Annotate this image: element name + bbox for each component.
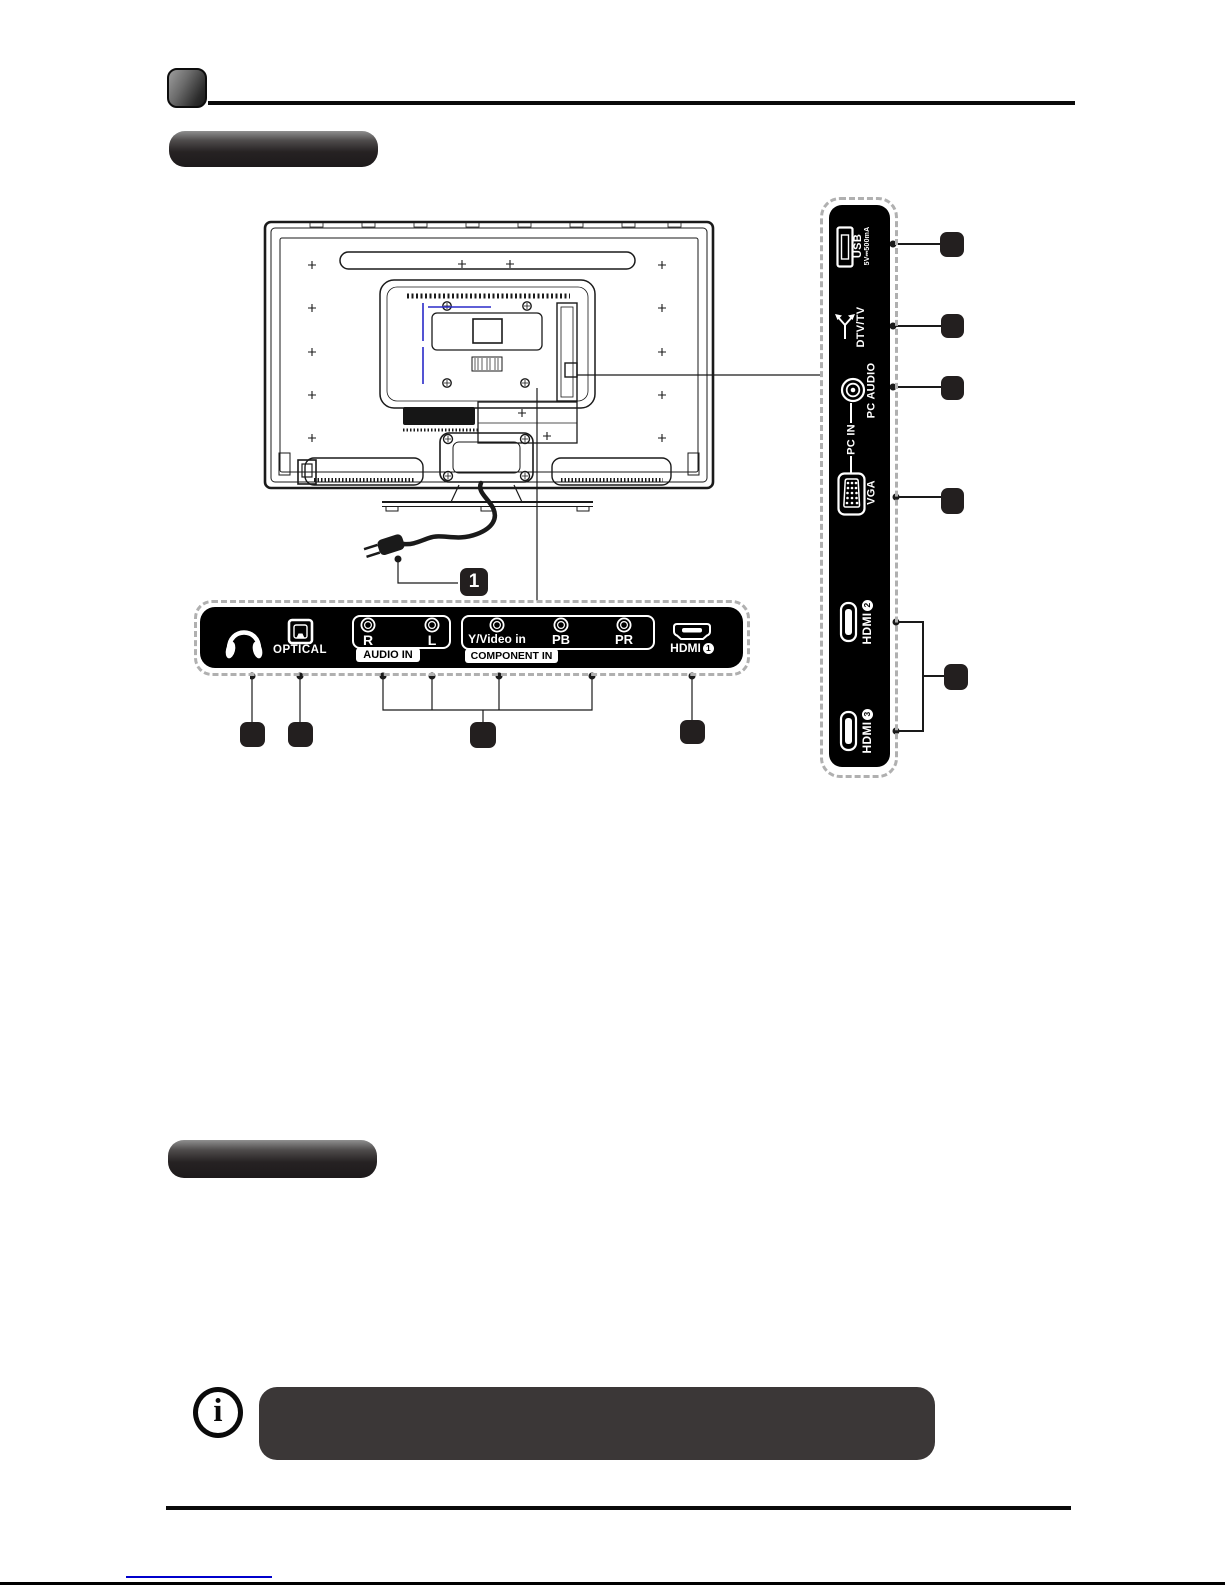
callout-badge-optical [288, 722, 313, 747]
section-title-bar [169, 131, 378, 167]
vga-port-icon [837, 472, 867, 516]
pc-in-label: PC IN [846, 421, 859, 459]
audio-r-jack-icon [360, 617, 376, 633]
footer-rule [166, 1506, 1071, 1510]
chapter-number-icon [167, 68, 207, 108]
component-pb-jack-icon [553, 617, 569, 633]
callout-badge-pc-audio [941, 376, 964, 400]
headphone-icon [221, 618, 267, 664]
callout-badge-headphone [240, 722, 265, 747]
dtv-tv-label: DTV/TV [855, 302, 869, 352]
antenna-icon [834, 312, 856, 340]
component-pr-label: PR [610, 632, 638, 647]
hdmi1-port-icon [672, 622, 712, 640]
power-cord [404, 483, 495, 544]
pc-audio-jack-icon [840, 377, 866, 403]
stand-neck [440, 433, 533, 482]
hdmi3-number: 3 [862, 709, 873, 720]
audio-l-jack-icon [424, 617, 440, 633]
audio-l-label: L [424, 632, 440, 648]
optical-port-icon [287, 618, 314, 645]
callout-badge-vga [941, 488, 964, 514]
footer-link-underline [126, 1576, 272, 1578]
hdmi1-label: HDMI1 [666, 641, 718, 655]
hdmi1-number: 1 [703, 643, 714, 654]
section-title-bar-2 [168, 1140, 377, 1178]
callout-badge-hdmi23 [944, 664, 968, 690]
usb-label: USB 5V⎓500mA [852, 219, 876, 273]
callout-badge-hdmi1 [680, 720, 705, 744]
note-box [259, 1387, 935, 1460]
callout-badge-usb [940, 232, 964, 257]
hdmi2-port-icon [839, 601, 858, 643]
callout-badge-av-inputs [470, 722, 496, 748]
component-pb-label: PB [547, 632, 575, 647]
header-rule [208, 101, 1075, 105]
optical-label: OPTICAL [269, 644, 331, 656]
hdmi2-number: 2 [862, 600, 873, 611]
callout-badge-power: 1 [460, 568, 488, 596]
component-y-label: Y/Video in [462, 632, 532, 646]
component-pr-jack-icon [616, 617, 632, 633]
info-icon: i [193, 1387, 243, 1438]
leader-lines-right [896, 244, 946, 731]
vga-label: VGA [866, 478, 879, 508]
tv-handle [340, 252, 635, 269]
audio-in-tab: AUDIO IN [356, 648, 420, 662]
vent-slot [403, 407, 475, 425]
hdmi3-label: HDMI3 [858, 707, 872, 755]
hdmi2-label: HDMI2 [858, 598, 872, 646]
audio-r-label: R [360, 632, 376, 648]
hdmi3-port-icon [839, 710, 858, 752]
callout-badge-dtv [941, 314, 964, 338]
pc-audio-label: PC AUDIO [866, 361, 879, 421]
leader-lines-bottom [252, 676, 692, 726]
component-y-jack-icon [489, 617, 505, 633]
component-in-tab: COMPONENT IN [465, 649, 558, 663]
